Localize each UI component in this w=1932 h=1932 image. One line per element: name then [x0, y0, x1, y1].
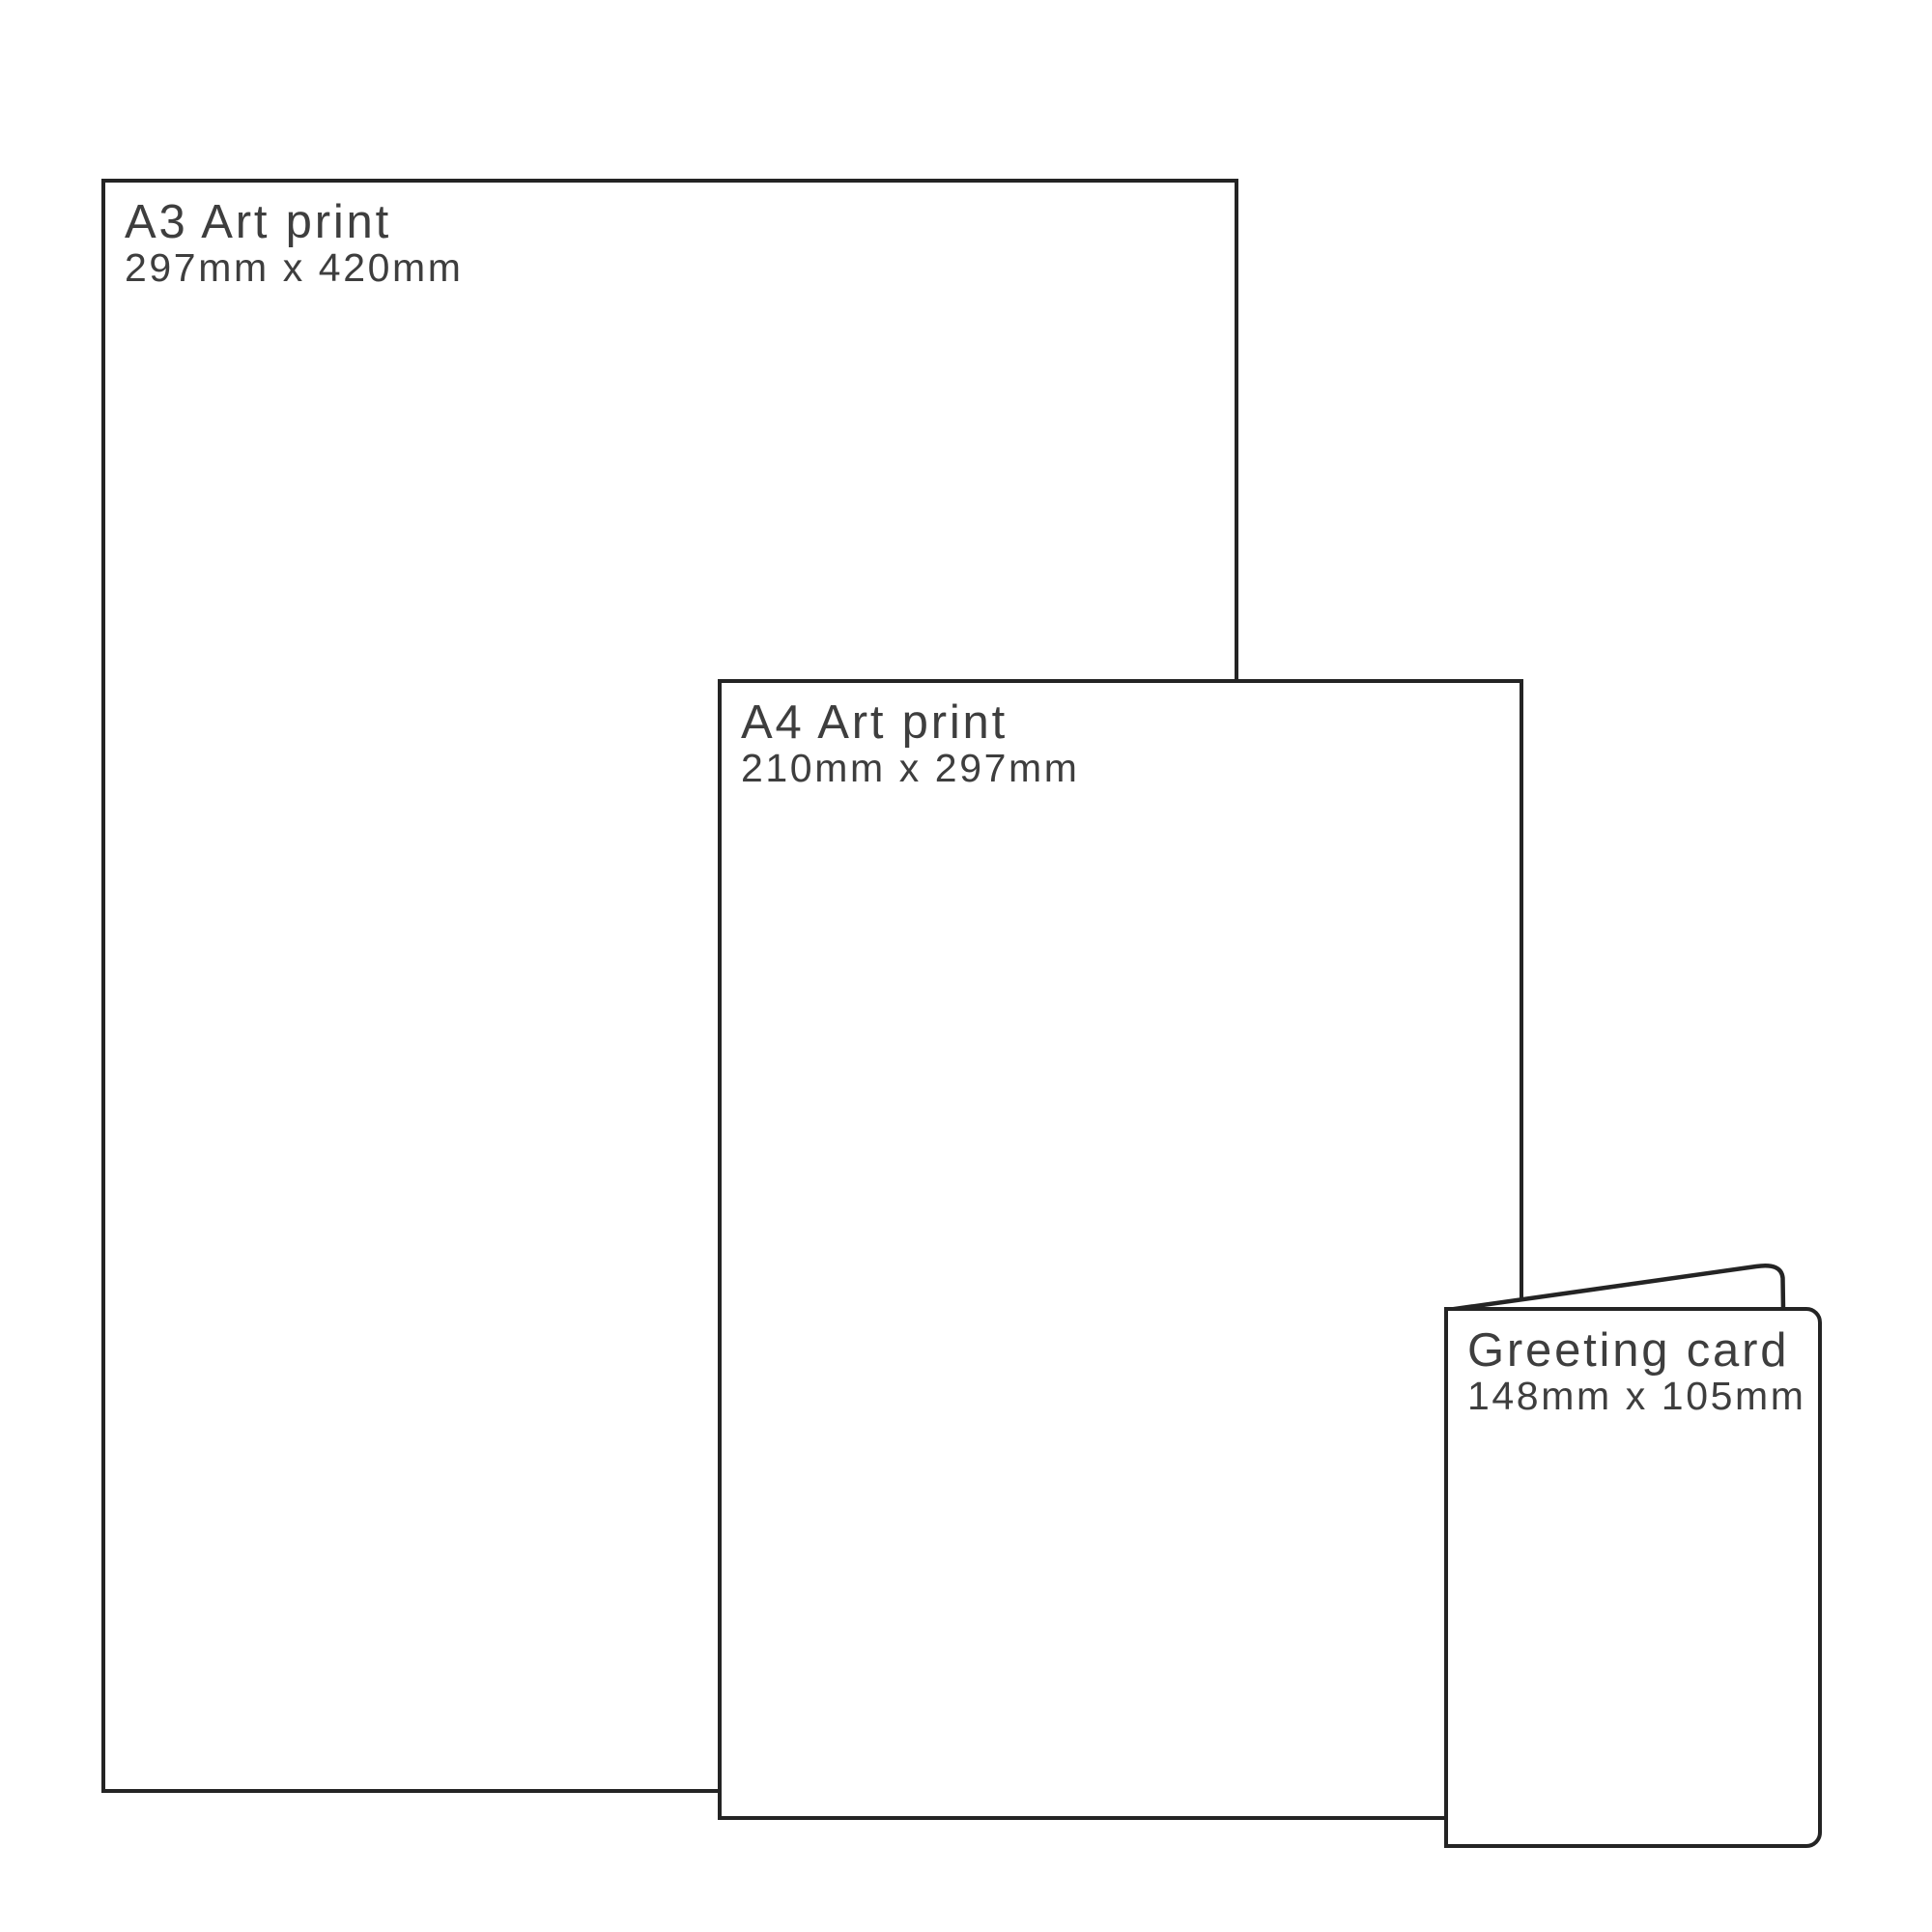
a3-art-print-title: A3 Art print [125, 199, 1227, 246]
a4-art-print-label: A4 Art print 210mm x 297mm [722, 683, 1520, 790]
greeting-card-label: Greeting card 148mm x 105mm [1448, 1311, 1818, 1418]
greeting-card-front-panel: Greeting card 148mm x 105mm [1444, 1307, 1822, 1848]
greeting-card-title: Greeting card [1467, 1327, 1810, 1375]
greeting-card-dimensions: 148mm x 105mm [1467, 1375, 1810, 1418]
a4-art-print-dimensions: 210mm x 297mm [741, 747, 1512, 790]
a3-art-print-dimensions: 297mm x 420mm [125, 246, 1227, 290]
a4-art-print-title: A4 Art print [741, 699, 1512, 747]
a3-art-print-label: A3 Art print 297mm x 420mm [105, 183, 1235, 290]
print-size-comparison-diagram: A3 Art print 297mm x 420mm A4 Art print … [0, 0, 1932, 1932]
a4-art-print-sheet: A4 Art print 210mm x 297mm [718, 679, 1523, 1820]
